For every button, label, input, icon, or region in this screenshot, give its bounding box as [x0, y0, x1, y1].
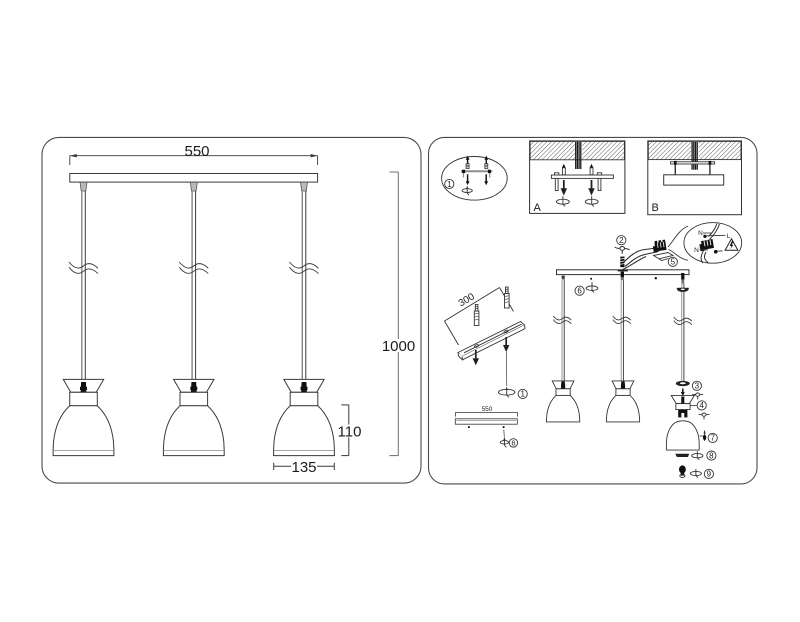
svg-text:7: 7 — [710, 434, 715, 443]
svg-text:B: B — [652, 202, 659, 214]
svg-text:9: 9 — [707, 470, 712, 479]
svg-text:1: 1 — [520, 390, 525, 399]
svg-text:1000: 1000 — [382, 338, 415, 355]
svg-text:135: 135 — [291, 459, 316, 476]
svg-text:550: 550 — [482, 406, 493, 413]
svg-text:110: 110 — [338, 424, 362, 441]
svg-text:L: L — [727, 233, 731, 240]
svg-text:6: 6 — [511, 439, 515, 448]
svg-text:N: N — [694, 247, 699, 254]
svg-text:4: 4 — [699, 401, 704, 410]
svg-text:2: 2 — [619, 236, 624, 245]
svg-text:N: N — [698, 230, 703, 237]
svg-text:6: 6 — [577, 287, 582, 296]
svg-text:1: 1 — [447, 180, 452, 189]
svg-text:3: 3 — [695, 382, 700, 391]
svg-text:550: 550 — [184, 143, 209, 160]
svg-text:8: 8 — [709, 451, 714, 460]
svg-text:5: 5 — [671, 258, 676, 267]
svg-text:A: A — [534, 202, 542, 214]
